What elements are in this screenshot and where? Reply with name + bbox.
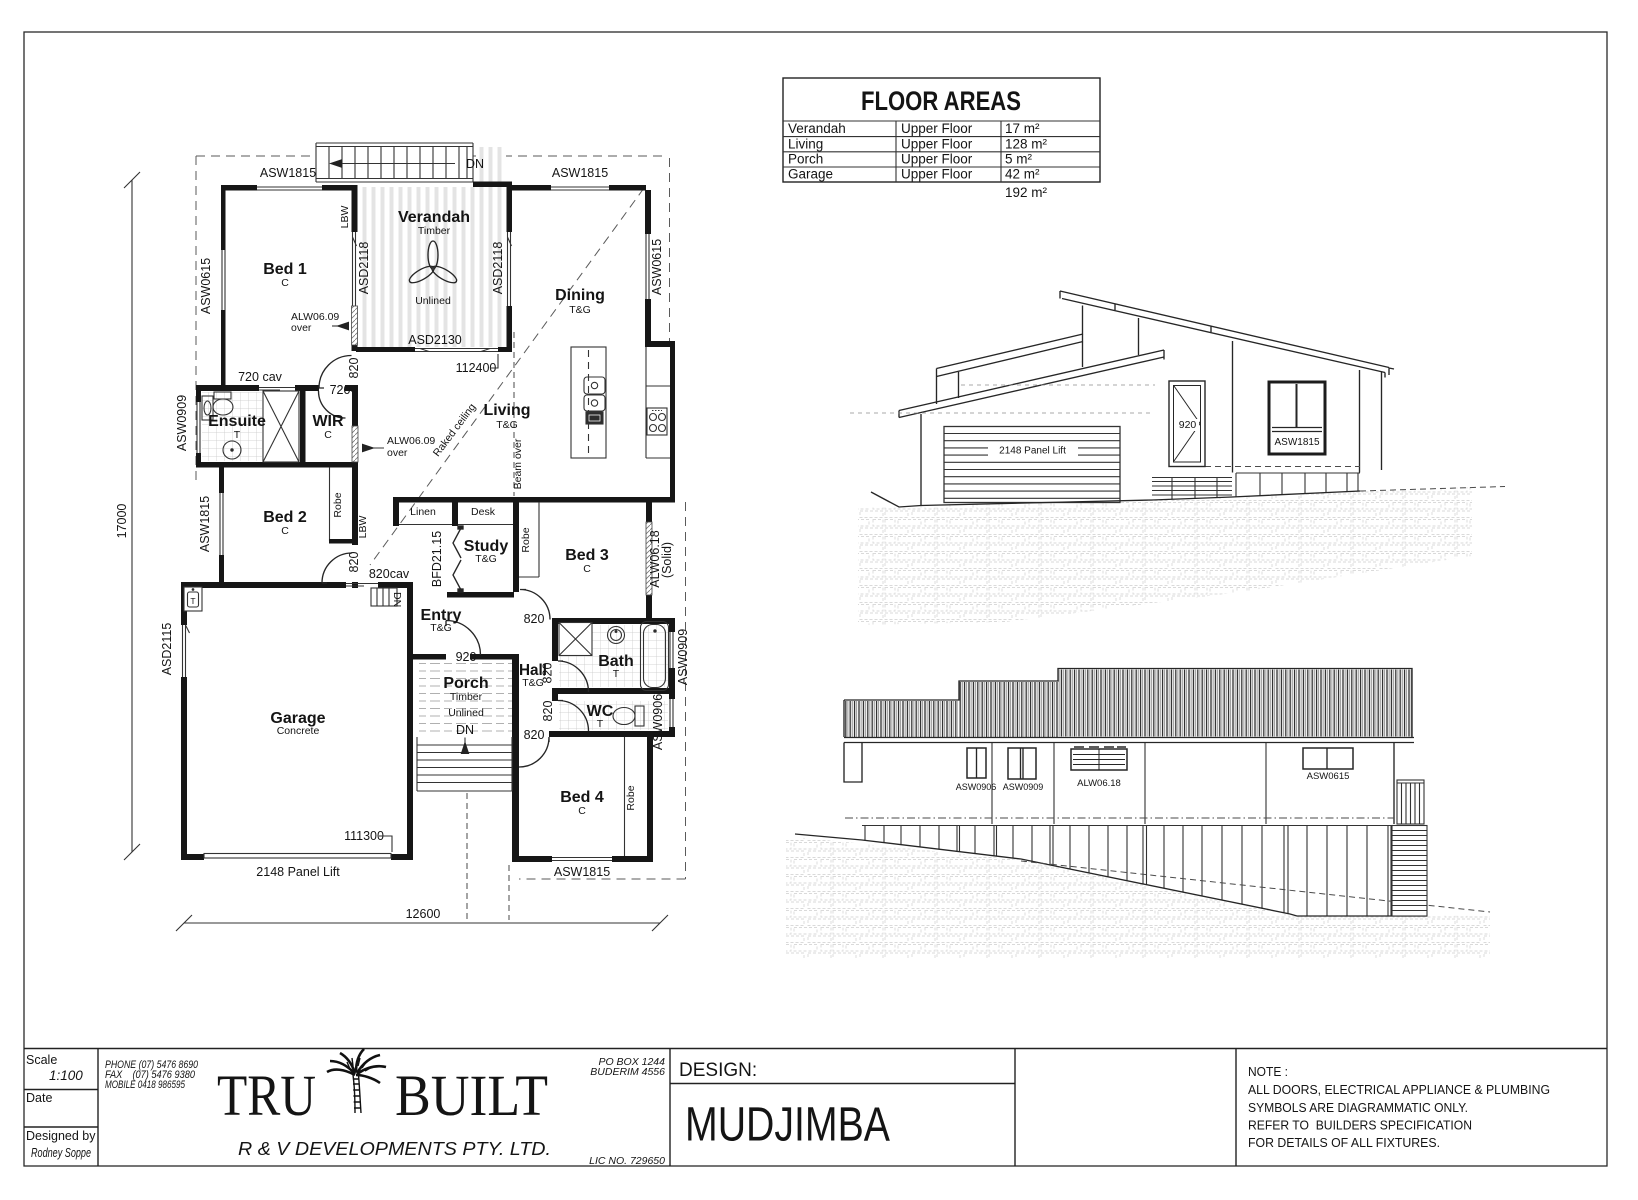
- svg-text:T: T: [613, 668, 620, 680]
- svg-text:Timber: Timber: [418, 225, 451, 237]
- svg-text:Living: Living: [788, 137, 823, 152]
- svg-text:Upper Floor: Upper Floor: [901, 121, 973, 136]
- svg-text:DESIGN:: DESIGN:: [679, 1060, 757, 1081]
- svg-text:C: C: [578, 805, 586, 817]
- svg-text:ASW0906: ASW0906: [651, 694, 665, 750]
- svg-text:Beam over: Beam over: [512, 438, 524, 489]
- svg-text:2148 Panel Lift: 2148 Panel Lift: [256, 865, 340, 879]
- svg-text:Timber: Timber: [450, 691, 483, 703]
- svg-text:over: over: [387, 447, 408, 459]
- svg-text:Unlined: Unlined: [448, 707, 484, 719]
- svg-text:Upper Floor: Upper Floor: [901, 167, 973, 182]
- svg-text:720: 720: [330, 383, 351, 397]
- svg-text:REFER TO BUILDERS SPECIFICATI: REFER TO BUILDERS SPECIFICATION: [1248, 1118, 1472, 1133]
- svg-text:C: C: [583, 563, 591, 575]
- svg-text:T: T: [190, 596, 195, 606]
- svg-text:Verandah: Verandah: [398, 209, 470, 226]
- svg-text:ASW1815: ASW1815: [1274, 437, 1319, 448]
- svg-text:Linen: Linen: [410, 506, 436, 518]
- svg-text:ASW0909: ASW0909: [175, 395, 189, 451]
- svg-text:Bed 2: Bed 2: [263, 509, 307, 526]
- svg-text:BUILT: BUILT: [395, 1063, 548, 1128]
- svg-text:T&G: T&G: [569, 304, 591, 316]
- svg-text:DN: DN: [456, 723, 474, 737]
- svg-text:FOR DETAILS OF ALL FIXTURES.: FOR DETAILS OF ALL FIXTURES.: [1248, 1135, 1440, 1150]
- svg-text:ASW1815: ASW1815: [260, 166, 316, 180]
- svg-text:ASW1815: ASW1815: [198, 496, 212, 552]
- svg-text:Desk: Desk: [471, 506, 496, 518]
- svg-text:FLOOR AREAS: FLOOR AREAS: [861, 86, 1021, 116]
- svg-text:ASD2118: ASD2118: [357, 242, 371, 295]
- svg-text:over: over: [291, 322, 312, 334]
- svg-text:LBW: LBW: [357, 516, 369, 539]
- svg-text:ASW0906: ASW0906: [956, 782, 997, 792]
- svg-text:Bed 4: Bed 4: [560, 789, 604, 806]
- svg-text:17 m²: 17 m²: [1005, 121, 1040, 136]
- svg-text:LIC NO. 729650: LIC NO. 729650: [589, 1155, 665, 1167]
- svg-text:Upper Floor: Upper Floor: [901, 152, 973, 167]
- svg-text:Garage: Garage: [788, 167, 833, 182]
- svg-text:ASD2130: ASD2130: [408, 333, 462, 347]
- svg-text:Dining: Dining: [555, 287, 605, 304]
- svg-text:ALW06.18: ALW06.18: [1077, 778, 1121, 789]
- svg-text:T&G: T&G: [430, 622, 452, 634]
- svg-text:920: 920: [1179, 419, 1197, 431]
- svg-text:R & V DEVELOPMENTS PTY. LTD.: R & V DEVELOPMENTS PTY. LTD.: [238, 1138, 551, 1159]
- svg-text:Porch: Porch: [443, 675, 488, 692]
- svg-text:TRU: TRU: [217, 1063, 316, 1128]
- svg-text:Bed 1: Bed 1: [263, 261, 307, 278]
- svg-text:ASD2115: ASD2115: [160, 623, 174, 676]
- svg-text:ASW0909: ASW0909: [1003, 782, 1044, 792]
- svg-text:WIR: WIR: [312, 413, 344, 430]
- svg-text:820: 820: [524, 612, 545, 626]
- svg-text:128 m²: 128 m²: [1005, 137, 1048, 152]
- svg-text:42 m²: 42 m²: [1005, 167, 1040, 182]
- svg-text:ASW1815: ASW1815: [554, 865, 610, 879]
- svg-text:Scale: Scale: [26, 1053, 57, 1067]
- svg-text:SYMBOLS ARE DIAGRAMMATIC ONLY.: SYMBOLS ARE DIAGRAMMATIC ONLY.: [1248, 1100, 1468, 1115]
- svg-text:820: 820: [541, 701, 555, 722]
- svg-text:17000: 17000: [115, 504, 129, 539]
- svg-text:920: 920: [456, 650, 477, 664]
- svg-text:ALW06.09: ALW06.09: [387, 435, 435, 447]
- svg-text:C: C: [281, 277, 289, 289]
- svg-text:T: T: [597, 718, 604, 730]
- svg-text:2148 Panel Lift: 2148 Panel Lift: [999, 446, 1066, 457]
- svg-text:Robe: Robe: [520, 527, 532, 552]
- svg-text:Porch: Porch: [788, 152, 823, 167]
- svg-text:ASD2118: ASD2118: [491, 242, 505, 295]
- svg-text:820: 820: [347, 552, 361, 573]
- svg-text:ASW1815: ASW1815: [552, 166, 608, 180]
- svg-text:820: 820: [541, 663, 555, 684]
- svg-text:Robe: Robe: [332, 492, 344, 517]
- svg-text:ASW0909: ASW0909: [676, 629, 690, 685]
- svg-text:111300: 111300: [344, 829, 384, 843]
- svg-text:C: C: [281, 525, 289, 537]
- svg-text:MOBILE 0418 986595: MOBILE 0418 986595: [105, 1079, 186, 1091]
- svg-text:BUDERIM 4556: BUDERIM 4556: [590, 1066, 665, 1078]
- svg-text:12600: 12600: [406, 907, 441, 921]
- svg-text:T&G: T&G: [475, 553, 497, 565]
- svg-text:Verandah: Verandah: [788, 121, 846, 136]
- svg-text:ASW0615: ASW0615: [650, 239, 664, 295]
- svg-text:T: T: [234, 429, 241, 441]
- svg-text:DN: DN: [391, 592, 403, 607]
- svg-text:Living: Living: [483, 402, 530, 419]
- svg-text:DN: DN: [466, 157, 484, 171]
- svg-text:Upper Floor: Upper Floor: [901, 137, 973, 152]
- svg-text:(Solid): (Solid): [660, 542, 674, 578]
- svg-text:Unlined: Unlined: [415, 295, 451, 307]
- svg-text:C: C: [324, 429, 332, 441]
- svg-text:720 cav: 720 cav: [238, 370, 283, 384]
- svg-text:MUDJIMBA: MUDJIMBA: [685, 1099, 890, 1152]
- svg-text:Designed by: Designed by: [26, 1129, 96, 1143]
- svg-text:Concrete: Concrete: [277, 725, 320, 737]
- svg-text:ASW0615: ASW0615: [199, 258, 213, 314]
- svg-text:1:100: 1:100: [49, 1068, 83, 1083]
- svg-text:LBW: LBW: [339, 206, 351, 229]
- svg-text:820: 820: [524, 728, 545, 742]
- svg-text:Bed 3: Bed 3: [565, 547, 609, 564]
- svg-text:T&G: T&G: [496, 419, 518, 431]
- svg-text:BFD21.15: BFD21.15: [430, 531, 444, 587]
- svg-text:ASW0615: ASW0615: [1307, 771, 1350, 782]
- svg-text:ALL DOORS, ELECTRICAL APPLIANC: ALL DOORS, ELECTRICAL APPLIANCE & PLUMBI…: [1248, 1082, 1550, 1097]
- svg-text:820cav: 820cav: [369, 567, 410, 581]
- svg-text:192 m²: 192 m²: [1005, 185, 1048, 200]
- svg-text:Date: Date: [26, 1091, 52, 1105]
- svg-text:Rodney Soppe: Rodney Soppe: [31, 1146, 91, 1160]
- svg-text:Robe: Robe: [625, 785, 637, 810]
- svg-text:820: 820: [347, 358, 361, 379]
- svg-text:5 m²: 5 m²: [1005, 152, 1033, 167]
- svg-text:Ensuite: Ensuite: [208, 413, 266, 430]
- svg-text:NOTE :: NOTE :: [1248, 1064, 1288, 1079]
